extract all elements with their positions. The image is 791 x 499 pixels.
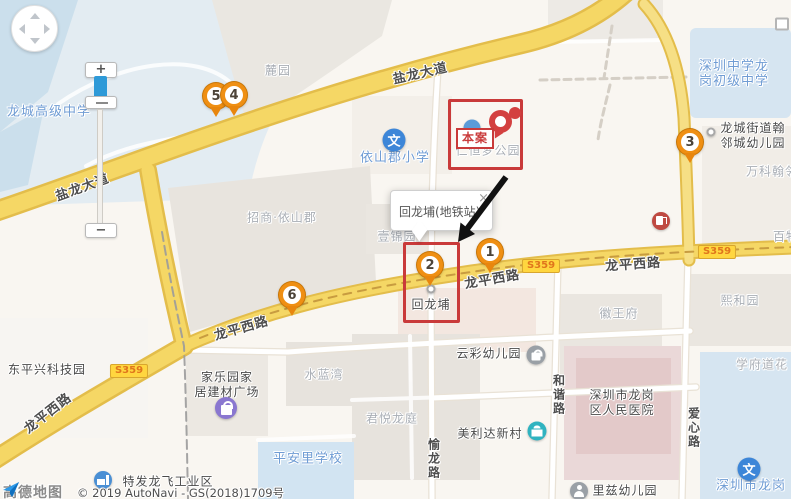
zoom-slider-handle[interactable] bbox=[85, 96, 117, 109]
pan-down-icon[interactable] bbox=[30, 38, 40, 44]
map-controls: + − bbox=[0, 0, 791, 499]
map-viewport[interactable]: 盐龙大道盐龙大道龙平西路龙平西路龙平西路龙平西路愉龙路和谐路爱心路S359S35… bbox=[0, 0, 791, 499]
pan-control[interactable] bbox=[11, 5, 58, 52]
amap-logo[interactable]: 高德地图 bbox=[3, 482, 63, 499]
paper-plane-icon bbox=[3, 482, 20, 497]
pan-up-icon[interactable] bbox=[30, 13, 40, 19]
pan-left-icon[interactable] bbox=[19, 24, 25, 34]
zoom-slider-fill bbox=[94, 76, 107, 98]
zoom-out-button[interactable]: − bbox=[85, 223, 117, 238]
zoom-slider-track[interactable] bbox=[97, 109, 103, 224]
pan-right-icon[interactable] bbox=[44, 24, 50, 34]
